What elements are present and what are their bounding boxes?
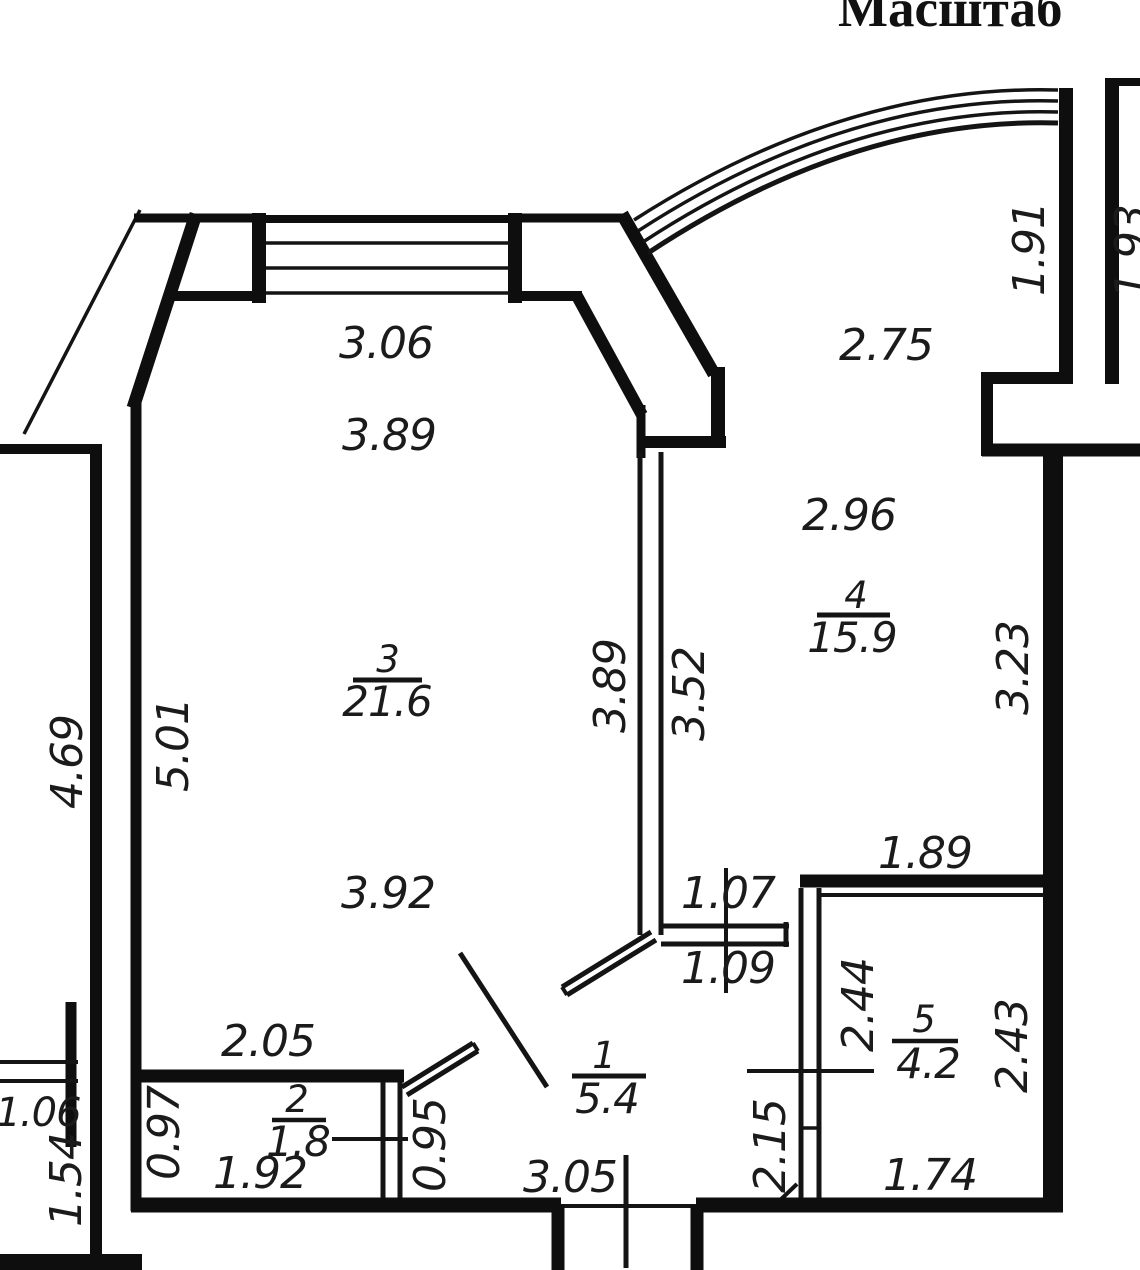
dim-4-69: 4.69 (42, 715, 93, 809)
room1-area: 5.4 (575, 1074, 639, 1123)
dim-3-05: 3.05 (523, 1152, 617, 1203)
dim-1-74: 1.74 (883, 1150, 977, 1201)
floor-plan: Масштаб 3.06 3.89 2.75 2.96 3.92 1.89 1.… (0, 0, 1140, 1270)
dim-3-23: 3.23 (988, 621, 1039, 715)
room4-number: 4 (844, 574, 868, 617)
bay-outer-edge-line (24, 210, 140, 434)
room3-number: 3 (376, 638, 400, 681)
room2-number: 2 (285, 1078, 309, 1121)
dim-1-54: 1.54 (41, 1133, 92, 1227)
window-left-jamb (252, 213, 266, 303)
dim-3-89-top: 3.89 (342, 410, 436, 461)
dim-3-92: 3.92 (341, 868, 435, 919)
dim-2-15: 2.15 (745, 1099, 796, 1193)
floor-plan-canvas: Масштаб 3.06 3.89 2.75 2.96 3.92 1.89 1.… (0, 0, 1140, 1270)
room3-area: 21.6 (342, 677, 432, 726)
dim-2-44: 2.44 (833, 958, 884, 1052)
window-right-jamb (508, 213, 522, 303)
dim-3-52: 3.52 (664, 647, 715, 741)
dim-2-96: 2.96 (802, 490, 896, 541)
dim-1-07: 1.07 (681, 868, 776, 919)
room3-room4-partition (640, 452, 661, 935)
room5-label: 5 4.2 (892, 998, 960, 1088)
dim-1-06: 1.06 (0, 1090, 81, 1136)
dim-0-95: 0.95 (405, 1098, 456, 1192)
room1-number: 1 (592, 1034, 616, 1077)
dim-5-01: 5.01 (148, 698, 199, 792)
room2-area: 1.8 (266, 1117, 330, 1166)
dim-1-91: 1.91 (1004, 202, 1055, 296)
dim-2-75: 2.75 (839, 320, 933, 371)
dim-0-97: 0.97 (139, 1085, 190, 1180)
dim-2-43: 2.43 (987, 999, 1038, 1093)
room5-number: 5 (912, 998, 936, 1041)
dim-1-09: 1.09 (681, 943, 775, 994)
room4-label: 4 15.9 (807, 574, 897, 662)
dim-3-06: 3.06 (339, 318, 433, 369)
curved-window-arcs (634, 90, 1058, 253)
dim-2-05: 2.05 (221, 1016, 315, 1067)
room2-label: 2 1.8 (266, 1078, 330, 1166)
door-swing-line (460, 953, 547, 1087)
drawing-title: Масштаб (838, 0, 1062, 38)
dim-1-93: 1.93 (1106, 205, 1140, 299)
dim-3-89-vertical: 3.89 (585, 639, 636, 733)
room1-label: 1 5.4 (572, 1034, 646, 1123)
dim-1-89: 1.89 (878, 828, 972, 879)
room3-label: 3 21.6 (342, 638, 432, 726)
bay-window-glazing (266, 219, 510, 293)
room5-area: 4.2 (896, 1039, 960, 1088)
room4-area: 15.9 (807, 613, 897, 662)
